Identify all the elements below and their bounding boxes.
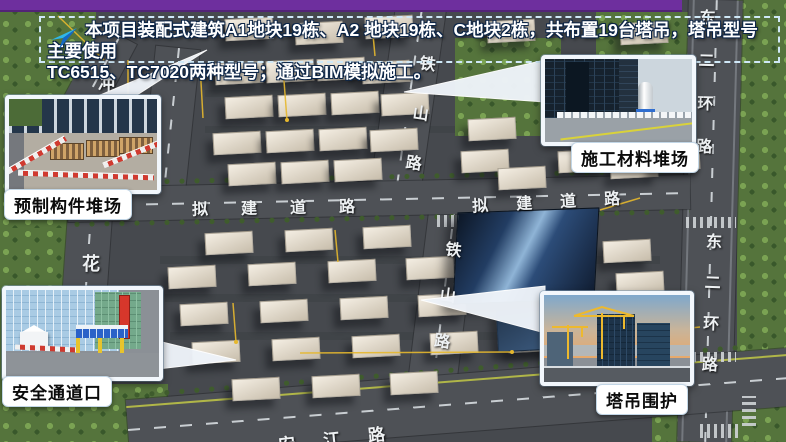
building-block <box>389 371 438 395</box>
building-block <box>231 377 280 401</box>
top-accent-bar <box>0 0 682 12</box>
building-block <box>333 158 382 182</box>
building-block <box>280 160 329 184</box>
building-block <box>311 374 360 398</box>
label-safety-passage: 安全通道口 <box>2 376 112 407</box>
building-block <box>204 231 253 255</box>
building-block <box>212 131 261 155</box>
building-block <box>191 340 240 364</box>
label-precast-yard: 预制构件堆场 <box>4 189 132 220</box>
tent <box>20 332 48 346</box>
building-block <box>259 299 308 323</box>
building-block <box>602 239 651 263</box>
building-block <box>227 162 276 186</box>
precast-yard-photo <box>9 99 157 190</box>
road-label-hua: 花 <box>82 250 100 276</box>
inset-crane-enclosure <box>540 291 694 386</box>
building-block <box>327 259 376 283</box>
building-block <box>277 93 326 117</box>
crosswalk <box>686 217 736 228</box>
building-block <box>265 129 314 153</box>
road-label-proposed-left: 拟建道路 <box>192 192 388 219</box>
cement-silo <box>638 82 653 112</box>
crosswalk <box>742 396 756 426</box>
precast-rack <box>86 140 120 157</box>
building-block <box>497 166 546 190</box>
passage-blue-sign <box>76 329 128 338</box>
building-block <box>339 296 388 320</box>
building-block <box>284 228 333 252</box>
building-block <box>247 262 296 286</box>
building-block <box>330 91 379 115</box>
building-block <box>224 95 273 119</box>
building-block <box>467 117 516 141</box>
material-yard-photo <box>545 59 692 142</box>
tower-cranes <box>544 295 690 382</box>
inset-safety-passage <box>2 286 163 381</box>
building-block <box>179 302 228 326</box>
building-block <box>167 265 216 289</box>
adjacent-tower <box>619 59 638 119</box>
building-block <box>271 337 320 361</box>
send-arrow-icon <box>50 27 78 50</box>
building-block <box>318 127 367 151</box>
glass-building <box>453 207 600 304</box>
building-block <box>351 334 400 358</box>
building-block <box>362 225 411 249</box>
safety-passage-photo <box>6 290 159 377</box>
inset-material-yard <box>541 55 696 146</box>
trees <box>9 99 42 126</box>
label-material-yard: 施工材料堆场 <box>571 142 699 173</box>
crane-enclosure-photo <box>544 295 690 382</box>
crosswalk <box>700 424 740 438</box>
bim-site-overview-slide: 铁山路 铁山路 拟建道路 拟建道路 东二环路 东二环路 花 冲 安江路 <box>0 0 786 442</box>
label-crane-enclosure: 塔吊围护 <box>596 384 688 415</box>
inset-precast-yard <box>5 95 161 194</box>
ground <box>6 353 159 377</box>
